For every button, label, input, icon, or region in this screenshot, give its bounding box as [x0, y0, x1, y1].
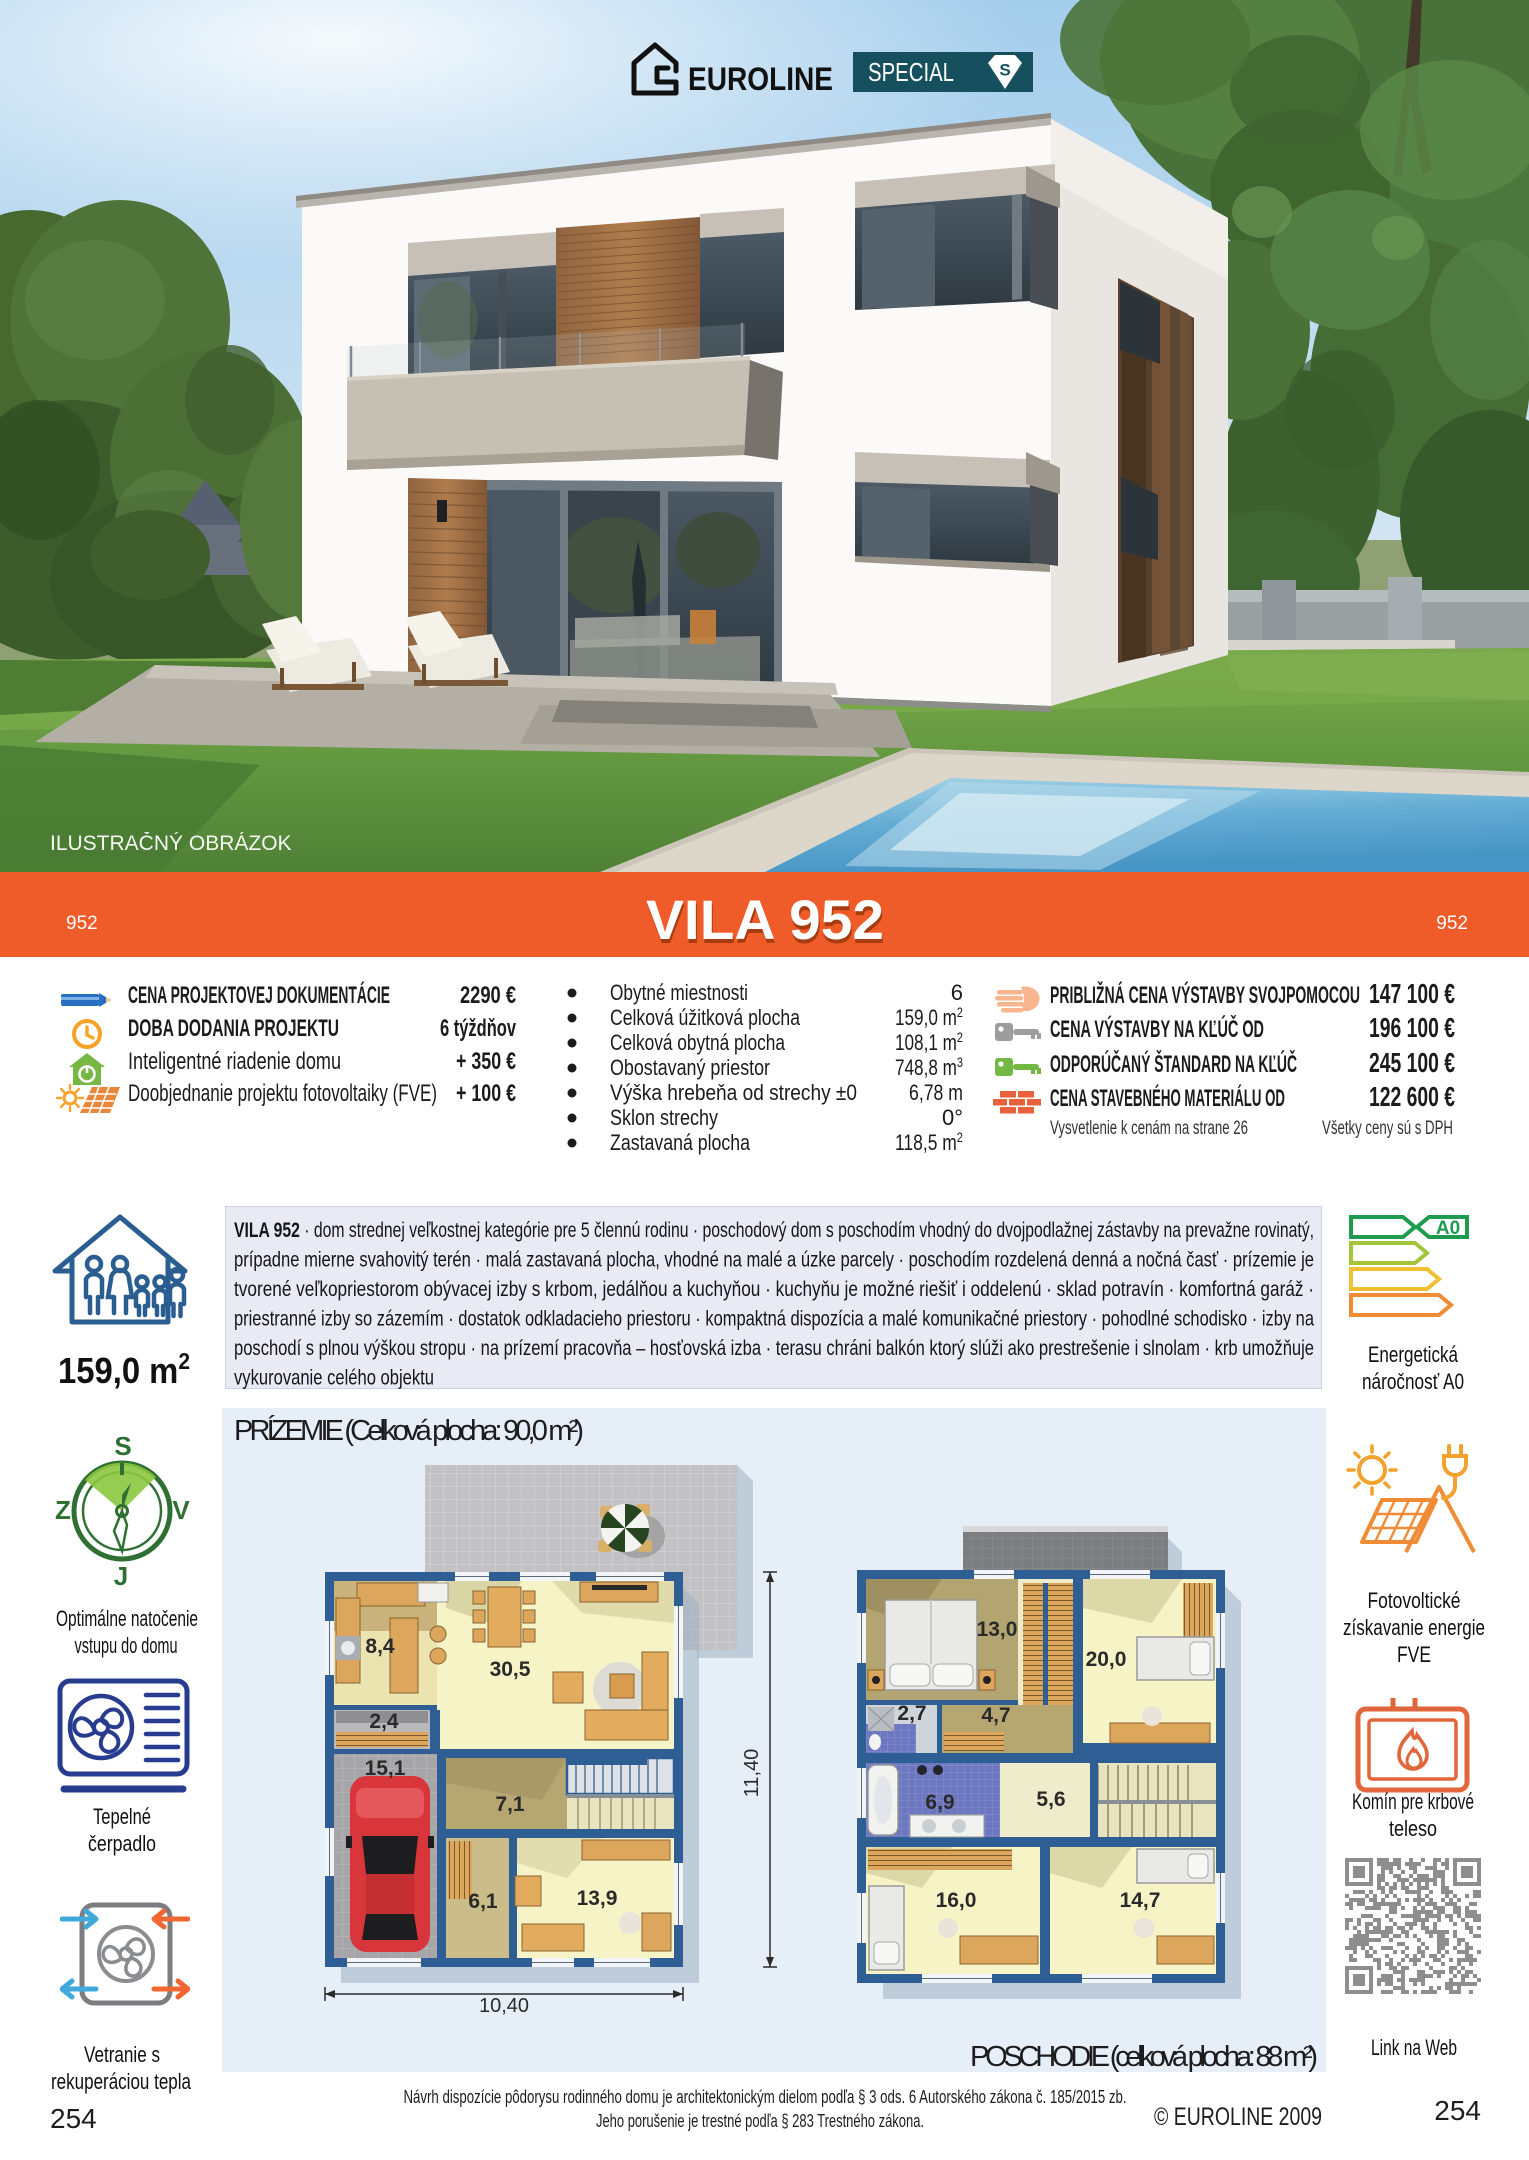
svg-text:V: V	[172, 1495, 190, 1525]
svg-text:147 100 €: 147 100 €	[1369, 978, 1455, 1009]
svg-text:6,1: 6,1	[468, 1890, 498, 1913]
svg-text:Vetranie s: Vetranie s	[84, 2042, 160, 2067]
svg-text:teleso: teleso	[1389, 1816, 1437, 1841]
svg-text:CENA VÝSTAVBY NA KĽÚČ OD: CENA VÝSTAVBY NA KĽÚČ OD	[1050, 1015, 1264, 1043]
svg-text:2290 €: 2290 €	[460, 982, 516, 1009]
svg-text:S: S	[999, 60, 1010, 79]
svg-text:14,7: 14,7	[1120, 1889, 1161, 1912]
svg-text:Obostavaný priestor: Obostavaný priestor	[610, 1055, 770, 1080]
svg-text:118,5 m2: 118,5 m2	[895, 1129, 963, 1155]
svg-text:poschodí s plnou výškou stropu: poschodí s plnou výškou stropu · na príz…	[234, 1337, 1314, 1360]
svg-text:20,0: 20,0	[1086, 1648, 1127, 1671]
svg-text:Energetická: Energetická	[1368, 1342, 1459, 1367]
svg-text:2,7: 2,7	[897, 1702, 926, 1725]
svg-text:CENA PROJEKTOVEJ DOKUMENTÁCIE: CENA PROJEKTOVEJ DOKUMENTÁCIE	[128, 981, 390, 1009]
svg-text:ILUSTRAČNÝ OBRÁZOK: ILUSTRAČNÝ OBRÁZOK	[50, 832, 292, 855]
svg-text:16,0: 16,0	[936, 1889, 977, 1912]
svg-text:A0: A0	[1436, 1218, 1460, 1239]
svg-text:6,9: 6,9	[925, 1791, 954, 1814]
svg-text:254: 254	[50, 2103, 97, 2134]
svg-text:Fotovoltické: Fotovoltické	[1368, 1588, 1461, 1613]
svg-text:159,0 m2: 159,0 m2	[58, 1348, 190, 1390]
svg-text:Obytné miestnosti: Obytné miestnosti	[610, 980, 748, 1005]
svg-text:Zastavaná plocha: Zastavaná plocha	[610, 1130, 751, 1155]
svg-text:159,0 m2: 159,0 m2	[895, 1004, 963, 1030]
svg-text:vykurovanie celého objektu: vykurovanie celého objektu	[234, 1367, 434, 1390]
svg-text:Link na Web: Link na Web	[1371, 2035, 1457, 2060]
svg-text:7,1: 7,1	[495, 1793, 525, 1816]
svg-text:CENA STAVEBNÉHO MATERIÁLU OD: CENA STAVEBNÉHO MATERIÁLU OD	[1050, 1084, 1285, 1112]
svg-text:+ 350 €: + 350 €	[456, 1048, 516, 1075]
svg-text:náročnosť A0: náročnosť A0	[1362, 1369, 1464, 1394]
svg-text:6: 6	[951, 980, 963, 1005]
svg-text:4,7: 4,7	[981, 1704, 1010, 1727]
svg-text:Jeho porušenie je trestné podľ: Jeho porušenie je trestné podľa § 283 Tr…	[596, 2110, 924, 2131]
svg-text:6 týždňov: 6 týždňov	[440, 1015, 516, 1042]
svg-text:952: 952	[66, 913, 98, 934]
svg-text:POSCHODIE (celková plocha: 88: POSCHODIE (celková plocha: 88 m²)	[970, 2041, 1318, 2072]
svg-text:Celková obytná plocha: Celková obytná plocha	[610, 1030, 786, 1055]
svg-text:EUROLINE: EUROLINE	[688, 61, 833, 97]
svg-text:SPECIAL: SPECIAL	[868, 57, 954, 87]
svg-text:čerpadlo: čerpadlo	[88, 1831, 156, 1856]
svg-text:122 600 €: 122 600 €	[1369, 1081, 1455, 1112]
svg-text:Výška hrebeňa od strechy ±0: Výška hrebeňa od strechy ±0	[610, 1080, 857, 1105]
svg-text:tvorené veľkopriestorom obývac: tvorené veľkopriestorom obývacej izby s …	[234, 1278, 1314, 1301]
svg-text:15,1: 15,1	[365, 1757, 406, 1780]
svg-text:254: 254	[1434, 2095, 1481, 2126]
svg-text:952: 952	[1436, 913, 1468, 934]
svg-text:Inteligentné riadenie domu: Inteligentné riadenie domu	[128, 1048, 341, 1075]
svg-text:prípadne mierne svahovitý teré: prípadne mierne svahovitý terén · malá z…	[234, 1249, 1314, 1272]
svg-text:2,4: 2,4	[369, 1710, 399, 1733]
svg-text:0°: 0°	[942, 1105, 963, 1130]
svg-text:VILA 952 · dom strednej veľkos: VILA 952 · dom strednej veľkostnej kateg…	[234, 1219, 1314, 1242]
svg-text:196 100 €: 196 100 €	[1369, 1012, 1455, 1043]
svg-text:11,40: 11,40	[741, 1749, 763, 1798]
svg-text:priestranné izby so zázemím ·: priestranné izby so zázemím · dostatok o…	[234, 1308, 1314, 1331]
svg-text:ODPORÚČANÝ ŠTANDARD NA KĽÚČ: ODPORÚČANÝ ŠTANDARD NA KĽÚČ	[1050, 1050, 1297, 1078]
svg-text:Celková úžitková plocha: Celková úžitková plocha	[610, 1005, 801, 1030]
svg-text:245 100 €: 245 100 €	[1369, 1047, 1455, 1078]
svg-text:13,9: 13,9	[577, 1887, 618, 1910]
svg-text:PRÍZEMIE (Celková plocha: 90,0: PRÍZEMIE (Celková plocha: 90,0 m²)	[234, 1414, 584, 1447]
svg-text:5,6: 5,6	[1036, 1788, 1065, 1811]
svg-text:Doobjednanie projektu fotovolt: Doobjednanie projektu fotovoltaiky (FVE)	[128, 1080, 437, 1107]
svg-text:získavanie energie: získavanie energie	[1343, 1615, 1485, 1640]
svg-text:FVE: FVE	[1397, 1642, 1431, 1667]
svg-text:Komín pre krbové: Komín pre krbové	[1352, 1789, 1474, 1814]
svg-text:Všetky ceny sú s DPH: Všetky ceny sú s DPH	[1322, 1118, 1453, 1139]
svg-text:Vysvetlenie k cenám na strane: Vysvetlenie k cenám na strane 26	[1050, 1118, 1248, 1139]
svg-text:13,0: 13,0	[977, 1618, 1018, 1641]
svg-text:748,8 m3: 748,8 m3	[895, 1054, 963, 1080]
svg-text:108,1 m2: 108,1 m2	[895, 1029, 963, 1055]
svg-text:Optimálne natočenie: Optimálne natočenie	[56, 1606, 198, 1631]
svg-text:VILA 952: VILA 952	[646, 888, 884, 951]
svg-text:30,5: 30,5	[490, 1658, 531, 1681]
svg-text:Tepelné: Tepelné	[93, 1804, 151, 1829]
svg-text:Z: Z	[55, 1495, 71, 1525]
svg-text:J: J	[114, 1561, 128, 1588]
svg-text:DOBA DODANIA PROJEKTU: DOBA DODANIA PROJEKTU	[128, 1015, 339, 1042]
svg-text:Návrh dispozície pôdorysu rodi: Návrh dispozície pôdorysu rodinného domu…	[404, 2086, 1127, 2107]
svg-text:8,4: 8,4	[365, 1635, 395, 1658]
svg-text:+ 100 €: + 100 €	[456, 1080, 516, 1107]
svg-text:S: S	[114, 1433, 131, 1461]
svg-text:10,40: 10,40	[479, 1995, 529, 2017]
svg-text:PRIBLIŽNÁ CENA VÝSTAVBY SVOJPO: PRIBLIŽNÁ CENA VÝSTAVBY SVOJPOMOCOU	[1050, 981, 1360, 1009]
svg-text:6,78 m: 6,78 m	[909, 1080, 963, 1105]
svg-text:© EUROLINE 2009: © EUROLINE 2009	[1154, 2103, 1322, 2131]
svg-text:Sklon strechy: Sklon strechy	[610, 1105, 718, 1130]
svg-text:vstupu do domu: vstupu do domu	[75, 1633, 178, 1658]
